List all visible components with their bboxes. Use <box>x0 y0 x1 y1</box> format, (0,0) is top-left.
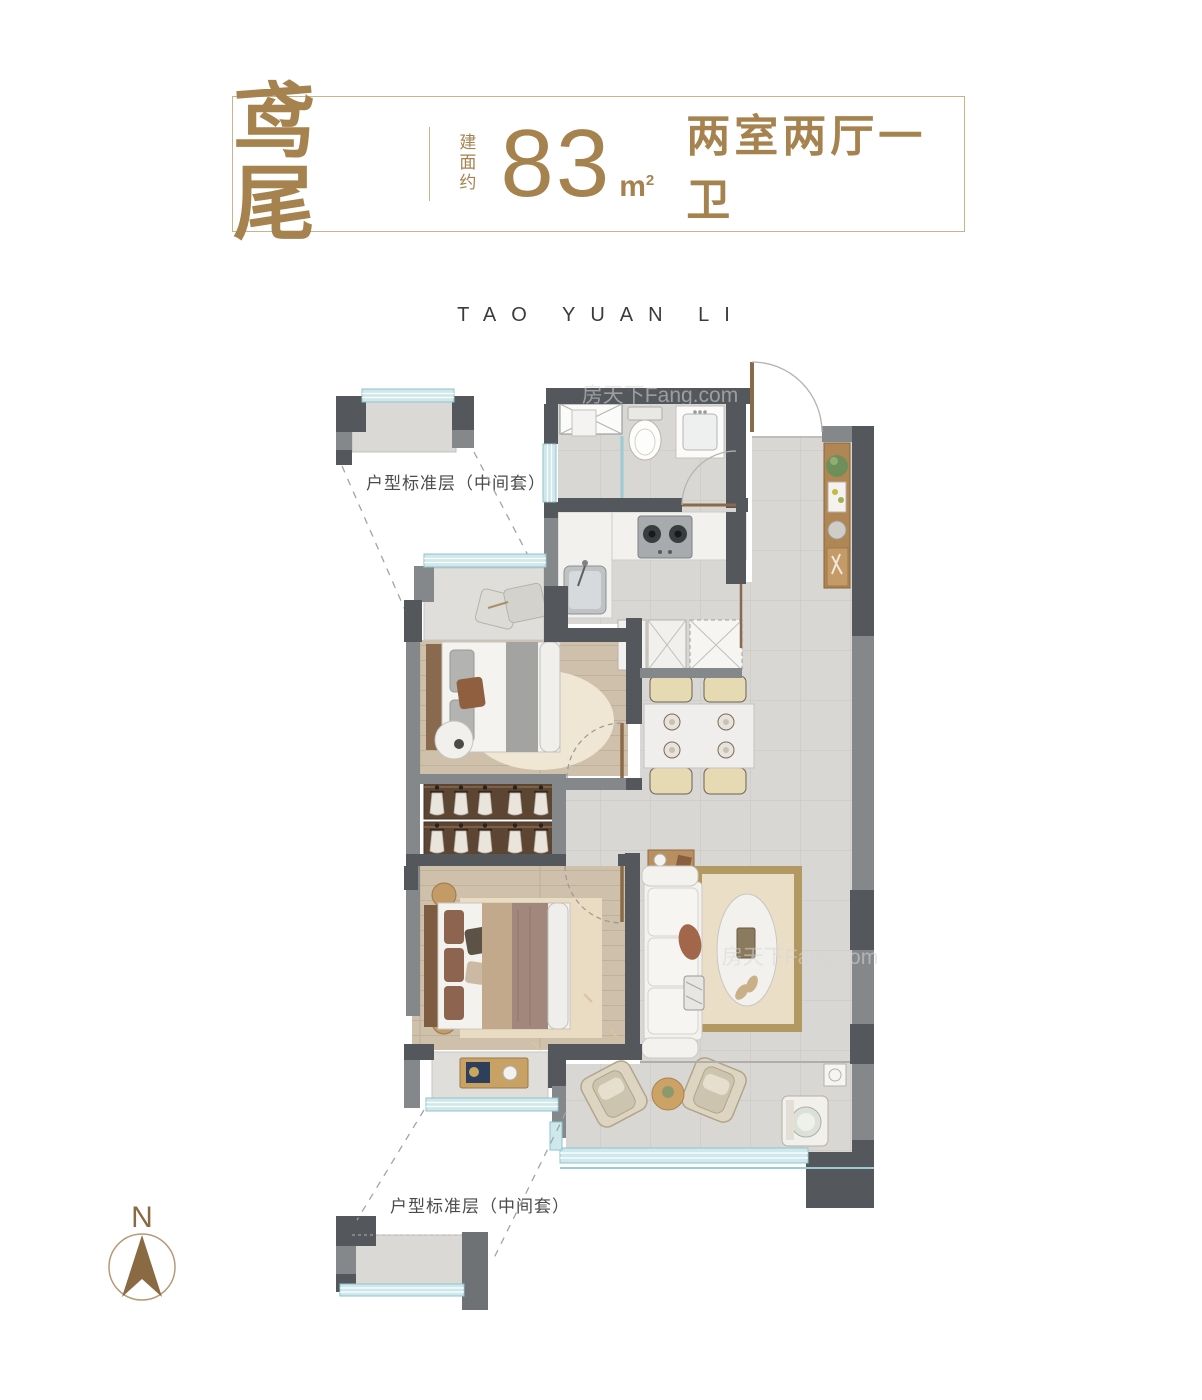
dining-table <box>644 704 754 768</box>
pillow <box>444 948 464 982</box>
plant-icon <box>826 455 848 477</box>
blanket <box>506 642 538 752</box>
flower <box>832 489 838 495</box>
toilet-icon <box>628 407 662 460</box>
side-table <box>435 721 473 759</box>
bedroom2-baywindow <box>424 554 546 567</box>
entry-door <box>752 362 822 432</box>
duvet-roll <box>540 642 560 752</box>
vanity-sink-icon <box>676 406 724 458</box>
detached-balcony-bottom <box>336 1216 488 1310</box>
bowl-icon <box>828 521 846 539</box>
sofa <box>642 850 705 1058</box>
floor-label-top: 户型标准层（中间套） <box>366 474 546 493</box>
window <box>340 1284 464 1296</box>
armrest <box>642 866 698 886</box>
flower-box <box>828 482 846 512</box>
entry-cabinet <box>824 443 850 588</box>
pillow <box>444 910 464 944</box>
shower-fixture <box>572 410 596 436</box>
master-baywindow <box>426 1098 558 1111</box>
wall <box>452 396 474 430</box>
kitchen-sink-icon <box>564 560 606 614</box>
baywindow-tray <box>460 1058 528 1088</box>
wardrobes <box>424 782 556 856</box>
plant-icon <box>662 1086 674 1098</box>
flower <box>838 497 844 503</box>
floor-label-bottom: 户型标准层（中间套） <box>390 1197 570 1216</box>
wall <box>336 432 352 450</box>
floor-plan-canvas: 户型标准层（中间套） <box>0 0 1202 1400</box>
bathroom-window <box>543 444 556 502</box>
compass: N <box>109 1201 175 1300</box>
wall <box>462 1232 488 1310</box>
balcony-top-floor <box>352 400 456 452</box>
wall <box>336 450 352 465</box>
floor-plan-page: 鸢尾 建面约 83 m2 两室两厅一卫 TAO YUAN LI <box>0 0 1202 1400</box>
armrest <box>642 1038 698 1058</box>
dining-chair <box>650 676 692 702</box>
headboard <box>424 905 438 1027</box>
bed-master <box>424 903 570 1029</box>
compass-arrow-icon <box>122 1235 162 1297</box>
pillow <box>444 986 464 1020</box>
cup <box>454 739 464 749</box>
duvet-roll <box>548 903 568 1029</box>
detached-balcony-top <box>336 389 474 465</box>
compass-north-label: N <box>131 1201 153 1234</box>
dining-chair <box>704 768 746 794</box>
window <box>362 389 454 402</box>
dining-chair <box>650 768 692 794</box>
dining-chair <box>704 676 746 702</box>
wall <box>452 430 474 448</box>
pattern-pillow <box>684 976 704 1010</box>
wall <box>336 1216 376 1246</box>
floor-drain <box>824 1064 846 1086</box>
blanket-tan <box>482 903 512 1029</box>
plant-leaf <box>830 457 838 465</box>
throw-pillow <box>456 676 486 709</box>
site-watermark: 房天下Fang.com <box>722 946 878 969</box>
washing-machine-icon <box>782 1096 828 1146</box>
wall <box>336 1246 356 1274</box>
site-watermark: 房天下Fang.com <box>582 384 738 407</box>
cup <box>654 854 666 866</box>
stove-icon <box>638 516 692 558</box>
